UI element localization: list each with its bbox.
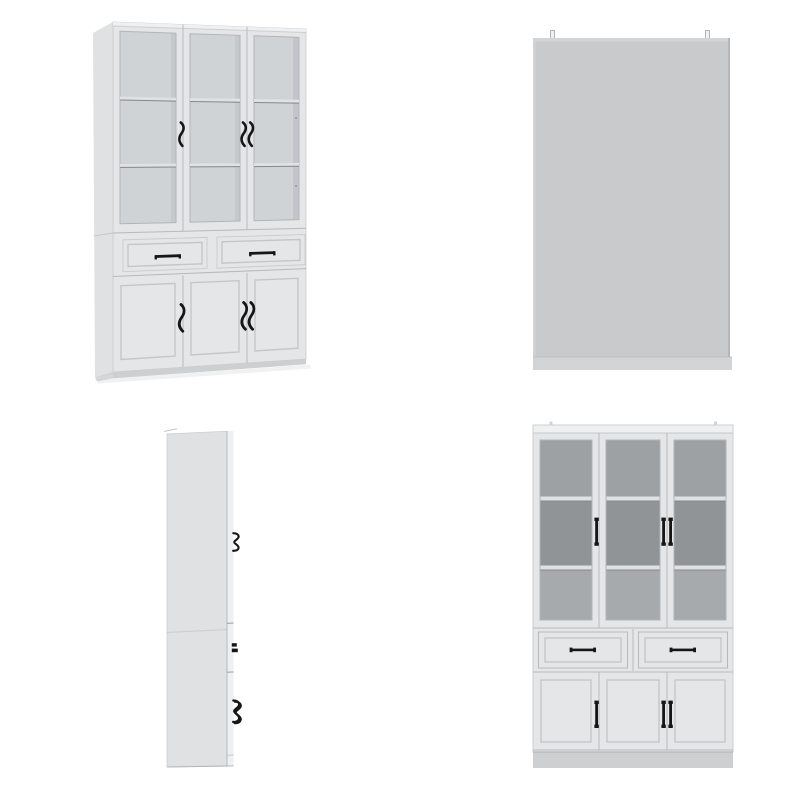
front-angled-render bbox=[0, 0, 400, 400]
hutch-glass-doors bbox=[533, 433, 733, 628]
drawer-1 bbox=[123, 237, 207, 271]
cabinet-side-panel bbox=[93, 22, 113, 378]
glass-door-3 bbox=[254, 36, 299, 221]
shelf-pin bbox=[295, 117, 297, 119]
side-profile bbox=[164, 429, 234, 767]
view-front-angled bbox=[0, 0, 400, 400]
back-render bbox=[400, 0, 800, 400]
view-back bbox=[400, 0, 800, 400]
view-front bbox=[400, 400, 800, 800]
back-panel bbox=[533, 38, 732, 370]
side-render bbox=[0, 400, 400, 800]
peg-left bbox=[551, 31, 555, 40]
peg-right bbox=[706, 31, 710, 40]
glass-door-1 bbox=[540, 440, 592, 620]
glass-door-2 bbox=[190, 34, 240, 223]
shelf-pin bbox=[295, 185, 297, 187]
glass-door-3 bbox=[674, 440, 726, 620]
front-edge-strip bbox=[227, 431, 234, 766]
hutch-glass-doors bbox=[113, 25, 306, 233]
upper-door-handle-profile bbox=[233, 533, 239, 551]
view-side bbox=[0, 400, 400, 800]
plinth-base bbox=[533, 752, 733, 768]
back-bottom-band bbox=[533, 357, 732, 370]
glass-door-2 bbox=[606, 440, 660, 620]
hanging-pegs bbox=[551, 31, 710, 40]
lower-door-handle-profile bbox=[233, 701, 241, 724]
drawer-2 bbox=[217, 235, 305, 269]
product-image-grid bbox=[0, 0, 800, 800]
glass-door-1 bbox=[120, 31, 176, 224]
front-render bbox=[400, 400, 800, 800]
